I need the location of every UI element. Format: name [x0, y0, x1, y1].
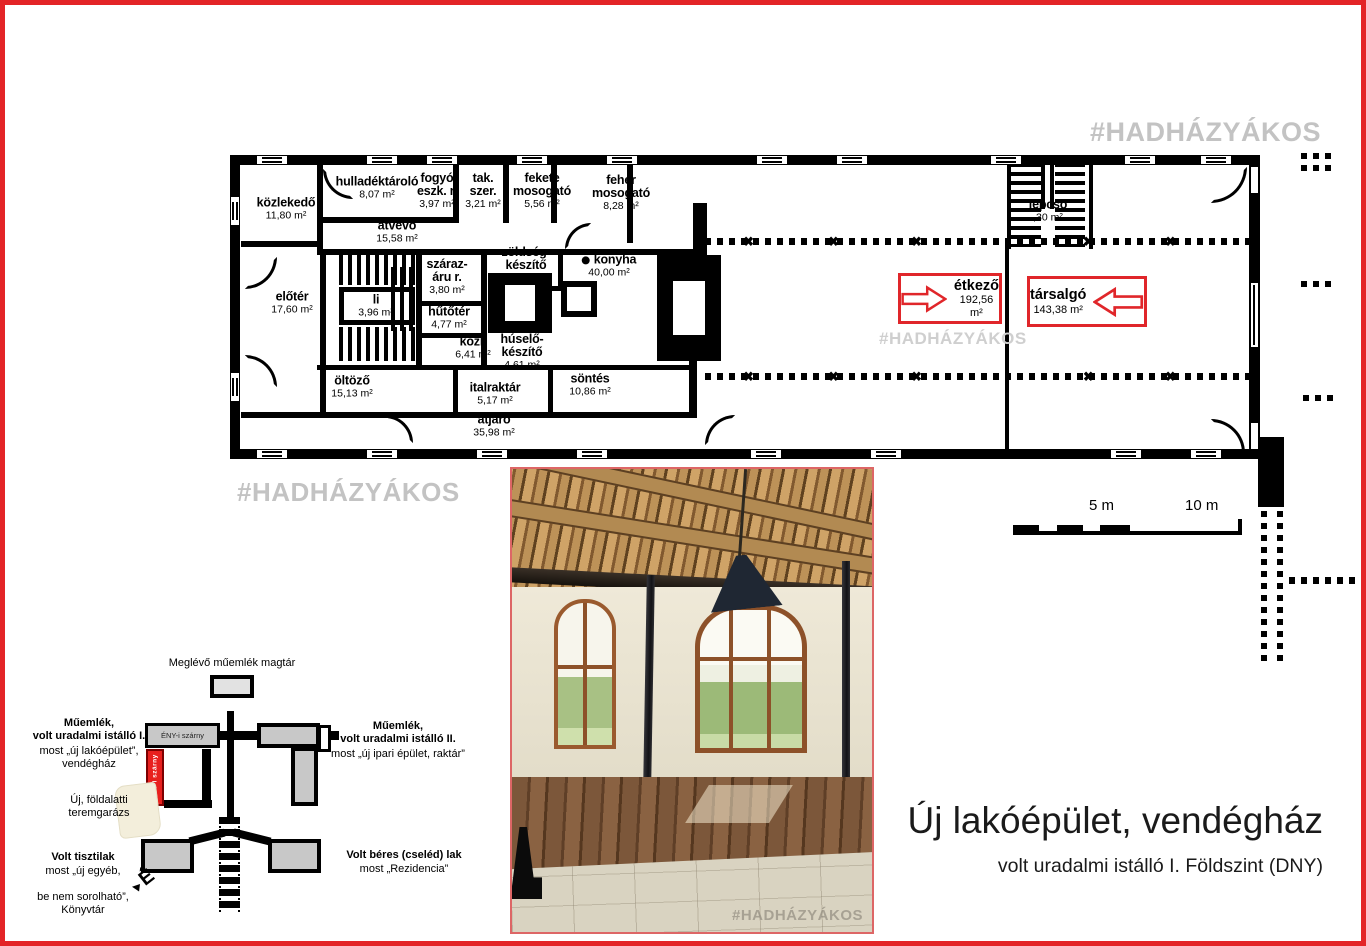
window-symbol	[367, 156, 397, 164]
arrow-right-icon	[901, 283, 947, 315]
window-symbol	[1201, 156, 1231, 164]
room-label-h-sel-k-sz-t-: húselő- készítő4,61 m²	[500, 333, 543, 371]
room-label-tak-szer-: tak. szer.3,21 m²	[465, 172, 501, 210]
scale-10m-label: 10 m	[1185, 497, 1218, 514]
column-marker-icon: ✖	[828, 234, 842, 248]
window-symbol	[991, 156, 1021, 164]
window-symbol	[367, 450, 397, 458]
beres-building	[268, 839, 321, 873]
tisztilak-building	[141, 839, 194, 873]
watermark-photo: #HADHÁZYÁKOS	[732, 907, 863, 924]
window-frame-line	[1253, 285, 1255, 345]
column-marker-icon: ✖	[1165, 234, 1179, 248]
istallo1-label-bold: Műemlék, volt uradalmi istálló I.	[23, 717, 155, 743]
page: #HADHÁZYÁKOS #HADHÁZYÁKOS #HADHÁZYÁKOS ✖…	[0, 0, 1366, 946]
column-axis-line	[1301, 281, 1331, 287]
window-symbol	[1111, 450, 1141, 458]
photo-door-mullion	[729, 610, 733, 748]
room-label-el-t-r: előtér17,60 m²	[271, 290, 312, 315]
watermark-mid-plan: #HADHÁZYÁKOS	[879, 329, 1027, 349]
column-marker-icon: ✖	[1165, 369, 1179, 383]
photo-left-window	[554, 599, 616, 749]
room-label-italrakt-r: italraktár5,17 m²	[470, 381, 521, 406]
dotted-continuation-line	[1277, 511, 1283, 663]
stair-hatch	[391, 267, 415, 331]
column-axis-line	[1289, 577, 1357, 584]
istallo2-wing-v	[291, 747, 318, 806]
photo-arched-door	[695, 605, 807, 753]
beres-label: most „Rezidencia”	[330, 863, 478, 876]
room-label-k-zleked-: közlekedő11,80 m²	[257, 196, 316, 221]
door-arc	[385, 415, 413, 443]
wall-segment	[241, 412, 697, 418]
column-axis-line	[1301, 165, 1331, 171]
tisztilak-label-bold: Volt tisztilak	[27, 851, 139, 864]
column-marker-icon: ✖	[828, 369, 842, 383]
wall-segment	[689, 361, 697, 415]
window-symbol	[231, 373, 239, 401]
room-label-k-zl-: közl.6,41 m²	[455, 335, 491, 360]
window-symbol	[871, 450, 901, 458]
scale-bar-block	[1013, 525, 1039, 535]
wall-opening	[567, 287, 591, 311]
tarsalgo-area: 143,38 m²	[1030, 304, 1086, 317]
wall-segment	[453, 367, 458, 415]
photo-cast-iron-column	[842, 561, 850, 783]
room-label-h-t-t-r: hűtőtér4,77 m²	[428, 305, 470, 330]
room-label-li: li3,96 m²	[358, 293, 394, 318]
room-label-hullad-kt-rol-: hulladéktároló8,07 m²	[336, 175, 419, 200]
room-label-sz-raz-ru-r-: száraz- áru r.3,80 m²	[427, 258, 468, 296]
scale-bar-end-tick	[1238, 519, 1242, 535]
column-marker-icon: ✖	[743, 369, 757, 383]
room-label--tj-r-: átjáró35,98 m²	[473, 413, 514, 438]
wall-segment	[416, 255, 422, 369]
stair-hatch	[339, 327, 415, 361]
photo-window-mullion	[583, 603, 587, 745]
room-label-feh-r-mosogat-: fehér mosogató8,28 m²	[592, 174, 650, 212]
garage-label: Új, földalatti teremgarázs	[53, 794, 145, 820]
istallo2-label: most „új ipari épület, raktár”	[323, 748, 473, 761]
wall-opening	[681, 295, 697, 323]
istallo1-label: most „új lakóépület”, vendégház	[23, 745, 155, 771]
column-marker-icon: ✖	[1083, 369, 1097, 383]
room-label-konyha: konyha40,00 m²	[582, 253, 637, 278]
tisztilak-label: most „új egyéb,	[27, 865, 139, 878]
etkezo-annotation-box: étkező 192,56 m²	[898, 273, 1002, 324]
window-symbol	[607, 156, 637, 164]
photo-door-mullion	[767, 610, 771, 748]
istallo2-label-bold: Műemlék, volt uradalmi istálló II.	[323, 720, 473, 746]
wall-opening	[1251, 167, 1258, 193]
north-arrow-icon: ▲	[127, 880, 143, 895]
page-title: Új lakóépület, vendégház	[907, 800, 1323, 842]
column-marker-icon: ✖	[911, 369, 925, 383]
column-marker-icon: ✖	[1083, 234, 1097, 248]
tarsalgo-label: társalgó	[1030, 287, 1086, 304]
room-label--lt-z-: öltöző15,13 m²	[331, 374, 372, 399]
eny-wing: ÉNY-i szárny	[145, 723, 220, 748]
page-subtitle: volt uradalmi istálló I. Földszint (DNY)	[998, 855, 1323, 878]
site-wall	[202, 749, 211, 808]
door-arc	[705, 415, 735, 445]
room-label-fogy-eszk-r-: fogyó eszk. r.3,97 m²	[417, 172, 457, 210]
magtar-label: Meglévő műemlék magtár	[125, 657, 339, 670]
scale-bar-block	[1057, 525, 1083, 535]
wall-opening	[505, 285, 535, 321]
wall-segment	[503, 163, 509, 223]
door-arc	[245, 257, 277, 289]
photo-door-mullion	[700, 657, 802, 661]
window-symbol	[837, 156, 867, 164]
room-label--tvev-: átvevő15,58 m²	[376, 219, 417, 244]
site-spine-wall	[227, 711, 234, 821]
column-dot-icon	[582, 256, 590, 264]
dotted-continuation-line	[1261, 511, 1267, 663]
beres-label-bold: Volt béres (cseléd) lak	[330, 849, 478, 862]
wall-segment	[241, 241, 321, 247]
tisztilak-label-more: be nem sorolható”, Könyvtár	[17, 891, 149, 917]
interior-photo: #HADHÁZYÁKOS	[510, 467, 874, 934]
wall-opening	[1251, 423, 1258, 449]
window-symbol	[751, 450, 781, 458]
column-marker-icon: ✖	[911, 234, 925, 248]
window-symbol	[517, 156, 547, 164]
door-arc	[1211, 419, 1245, 453]
window-symbol	[427, 156, 457, 164]
window-symbol	[257, 156, 287, 164]
window-symbol	[757, 156, 787, 164]
door-arc	[1211, 167, 1247, 203]
room-label-fekete-mosogat-: fekete mosogató5,56 m²	[513, 172, 571, 210]
window-symbol	[1125, 156, 1155, 164]
window-symbol	[477, 450, 507, 458]
room-label-s-nt-s: söntés10,86 m²	[569, 372, 610, 397]
window-symbol	[231, 197, 239, 225]
column-marker-icon: ✖	[743, 234, 757, 248]
wall-segment	[320, 249, 326, 417]
room-label-z-lds-g-k-sz-t-: zöldség- készítő4,61 m²	[501, 246, 550, 284]
window-symbol	[577, 450, 607, 458]
wall-segment	[317, 163, 323, 249]
arrow-left-icon	[1093, 286, 1144, 318]
etkezo-label: étkező	[954, 278, 999, 295]
wall-segment	[548, 367, 553, 415]
door-arc	[565, 223, 591, 249]
scale-bar: 5 m 10 m	[1013, 497, 1249, 539]
column-axis-line	[1303, 395, 1333, 401]
magtar-building	[210, 675, 254, 698]
photo-window-mullion	[558, 665, 612, 669]
tarsalgo-annotation-box: társalgó 143,38 m²	[1027, 276, 1147, 327]
window-symbol	[257, 450, 287, 458]
scale-5m-label: 5 m	[1089, 497, 1114, 514]
watermark-plan-left: #HADHÁZYÁKOS	[237, 477, 460, 508]
watermark-top-right: #HADHÁZYÁKOS	[1090, 117, 1321, 148]
etkezo-area: 192,56 m²	[954, 294, 999, 319]
column-axis-line	[1301, 153, 1331, 159]
door-arc	[245, 355, 277, 387]
istallo2-wing-h	[257, 723, 320, 748]
room-label-l-pcs-: lépcső,30 m²	[1029, 198, 1067, 223]
scale-bar-block	[1100, 525, 1130, 535]
wall-segment	[1258, 437, 1284, 507]
